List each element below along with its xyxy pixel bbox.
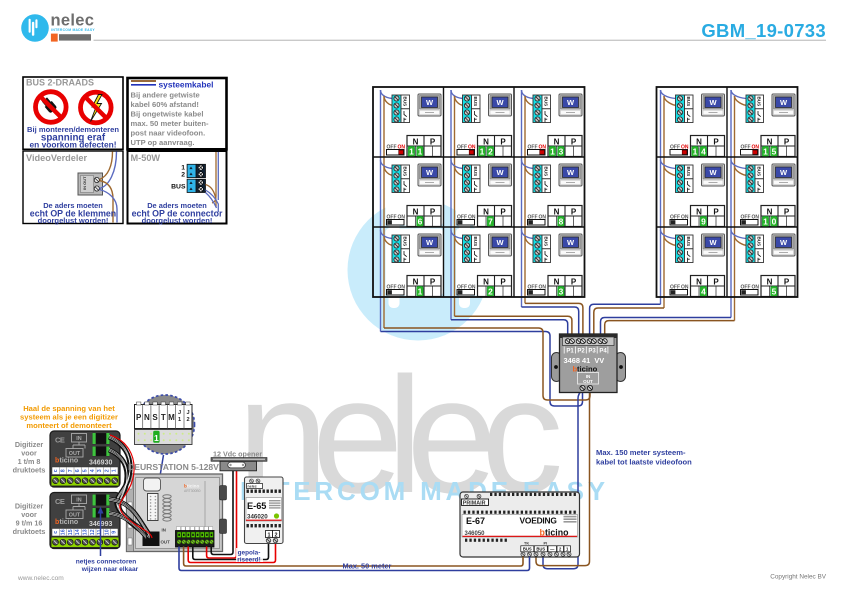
- svg-text:P: P: [430, 208, 436, 217]
- svg-text:druktoets: druktoets: [13, 466, 46, 475]
- svg-text:VideoVerdeler: VideoVerdeler: [26, 153, 88, 163]
- svg-text:P: P: [713, 138, 719, 147]
- svg-text:IN: IN: [76, 436, 81, 442]
- svg-text:N: N: [144, 413, 150, 422]
- svg-text:15: 15: [68, 529, 74, 535]
- svg-text:W: W: [426, 98, 434, 107]
- svg-text:N: N: [483, 278, 489, 287]
- svg-text:c: c: [53, 531, 59, 534]
- svg-text:4: 4: [701, 287, 706, 297]
- svg-text:9: 9: [701, 217, 706, 227]
- svg-text:BUS: BUS: [757, 167, 762, 177]
- svg-text:max. 50 meter buiten-: max. 50 meter buiten-: [131, 119, 210, 128]
- svg-text:1: 1: [550, 147, 555, 157]
- svg-text:P: P: [784, 138, 790, 147]
- svg-text:W: W: [709, 98, 717, 107]
- svg-text:W: W: [567, 98, 575, 107]
- svg-text:1: 1: [418, 287, 423, 297]
- svg-text:VOEDING: VOEDING: [520, 516, 557, 526]
- svg-text:2: 2: [488, 287, 493, 297]
- svg-text:W: W: [426, 168, 434, 177]
- svg-text:10: 10: [104, 529, 110, 535]
- svg-text:2: 2: [488, 147, 493, 157]
- svg-text:W: W: [496, 98, 504, 107]
- svg-text:P: P: [713, 278, 719, 287]
- svg-text:P: P: [500, 138, 506, 147]
- svg-text:BUS: BUS: [171, 184, 186, 191]
- svg-text:INTERCOM MADE EASY: INTERCOM MADE EASY: [51, 28, 95, 32]
- svg-text:netjes connectoren: netjes connectoren: [76, 559, 136, 566]
- svg-text:P: P: [571, 138, 577, 147]
- svg-text:346930: 346930: [89, 460, 112, 467]
- svg-text:BUS 2-DRAADS: BUS 2-DRAADS: [26, 78, 94, 88]
- svg-text:N: N: [413, 138, 419, 147]
- svg-text:ticino: ticino: [545, 528, 569, 538]
- svg-text:nelec: nelec: [248, 485, 257, 489]
- svg-text:N: N: [413, 208, 419, 217]
- svg-text:7: 7: [488, 217, 493, 227]
- svg-text:OUT: OUT: [69, 451, 81, 457]
- svg-text:N: N: [413, 278, 419, 287]
- svg-text:1: 1: [763, 217, 768, 227]
- svg-text:ticino: ticino: [187, 484, 199, 489]
- svg-text:BUS: BUS: [544, 97, 549, 107]
- svg-text:BUS: BUS: [403, 167, 408, 177]
- svg-text:P: P: [500, 208, 506, 217]
- svg-text:DEURSTATION 5-128V: DEURSTATION 5-128V: [128, 462, 219, 472]
- svg-text:9: 9: [112, 531, 118, 534]
- svg-text:N: N: [767, 278, 773, 287]
- svg-text:6: 6: [75, 469, 81, 472]
- svg-text:N: N: [483, 208, 489, 217]
- svg-text:W: W: [709, 168, 717, 177]
- svg-text:kabel 60% afstand!: kabel 60% afstand!: [131, 100, 199, 109]
- svg-text:TK: TK: [524, 542, 529, 546]
- svg-text:OUT: OUT: [69, 513, 81, 519]
- svg-text:druktoets: druktoets: [13, 527, 46, 536]
- svg-text:BUS: BUS: [757, 97, 762, 107]
- svg-text:PRIMAIR: PRIMAIR: [463, 500, 486, 506]
- svg-text:N: N: [554, 208, 560, 217]
- svg-text:4: 4: [90, 469, 96, 472]
- svg-text:P4: P4: [599, 349, 607, 355]
- svg-text:W: W: [567, 168, 575, 177]
- svg-text:P: P: [500, 278, 506, 287]
- svg-text:doorgelust worden!: doorgelust worden!: [142, 216, 213, 225]
- svg-text:1: 1: [112, 469, 118, 472]
- svg-text:16: 16: [60, 529, 66, 535]
- svg-text:CE: CE: [55, 497, 65, 506]
- svg-text:P: P: [571, 208, 577, 217]
- svg-text:N: N: [696, 208, 702, 217]
- svg-text:P: P: [571, 278, 577, 287]
- svg-text:Max. 150 meter systeem-: Max. 150 meter systeem-: [596, 448, 686, 457]
- svg-text:N: N: [554, 278, 560, 287]
- svg-text:Bij ongetwiste kabel: Bij ongetwiste kabel: [131, 110, 204, 119]
- svg-text:N: N: [767, 138, 773, 147]
- svg-text:GBM_19-0733: GBM_19-0733: [701, 20, 826, 41]
- svg-text:www.nelec.com: www.nelec.com: [17, 575, 64, 582]
- svg-text:PI: PI: [544, 542, 548, 546]
- svg-text:BUS: BUS: [473, 237, 478, 247]
- svg-text:BUS: BUS: [544, 237, 549, 247]
- svg-text:2: 2: [104, 469, 110, 472]
- svg-text:riseerd!: riseerd!: [237, 557, 260, 564]
- svg-text:W: W: [780, 238, 788, 247]
- svg-text:W: W: [496, 168, 504, 177]
- svg-text:S: S: [152, 413, 158, 422]
- svg-text:M-50W: M-50W: [131, 153, 161, 163]
- svg-text:N: N: [696, 278, 702, 287]
- svg-text:5: 5: [772, 287, 777, 297]
- svg-text:8: 8: [60, 469, 66, 472]
- svg-text:1: 1: [418, 147, 423, 157]
- svg-text:Max. 50 meter: Max. 50 meter: [343, 562, 392, 571]
- svg-text:N: N: [483, 138, 489, 147]
- svg-text:W: W: [780, 98, 788, 107]
- svg-text:5: 5: [772, 147, 777, 157]
- svg-text:P3: P3: [588, 349, 596, 355]
- svg-text:P2: P2: [577, 349, 585, 355]
- svg-text:1: 1: [268, 533, 271, 539]
- svg-text:Bij andere getwiste: Bij andere getwiste: [131, 91, 200, 100]
- svg-text:1: 1: [480, 147, 485, 157]
- svg-text:kabel tot laatste videofoon: kabel tot laatste videofoon: [596, 458, 692, 467]
- svg-text:IN: IN: [76, 498, 81, 504]
- svg-text:W: W: [709, 238, 717, 247]
- svg-text:1: 1: [409, 147, 414, 157]
- svg-text:wijzen naar elkaar: wijzen naar elkaar: [81, 566, 139, 573]
- svg-text:W: W: [496, 238, 504, 247]
- svg-text:M: M: [168, 413, 175, 422]
- svg-text:8: 8: [559, 217, 564, 227]
- svg-text:BUS: BUS: [686, 237, 691, 247]
- svg-text:OUT: OUT: [161, 540, 171, 545]
- svg-text:7: 7: [68, 469, 74, 472]
- svg-text:N: N: [554, 138, 560, 147]
- svg-text:2: 2: [275, 533, 278, 539]
- svg-text:W: W: [780, 168, 788, 177]
- svg-text:W: W: [567, 238, 575, 247]
- svg-text:post naar videofoon.: post naar videofoon.: [131, 129, 206, 138]
- svg-text:4: 4: [701, 147, 706, 157]
- svg-text:P: P: [784, 278, 790, 287]
- svg-text:BUS: BUS: [536, 547, 545, 552]
- svg-text:ART300B0: ART300B0: [184, 489, 201, 493]
- svg-text:346020: 346020: [247, 514, 268, 521]
- svg-text:CE: CE: [55, 436, 65, 445]
- svg-text:ticino: ticino: [60, 458, 79, 465]
- svg-text:N: N: [767, 208, 773, 217]
- svg-text:N: N: [696, 138, 702, 147]
- svg-text:3: 3: [559, 287, 564, 297]
- svg-text:BUS: BUS: [544, 167, 549, 177]
- svg-text:1: 1: [693, 147, 698, 157]
- svg-text:systeemkabel: systeemkabel: [159, 80, 214, 90]
- svg-text:13: 13: [82, 529, 88, 535]
- svg-text:BUS: BUS: [403, 237, 408, 247]
- svg-text:12 Vdc opener: 12 Vdc opener: [213, 450, 262, 459]
- svg-text:2: 2: [181, 171, 185, 178]
- svg-text:en voorkom defecten!: en voorkom defecten!: [29, 140, 116, 150]
- svg-text:3: 3: [97, 469, 103, 472]
- svg-text:IN: IN: [162, 528, 166, 533]
- svg-text:c: c: [53, 469, 59, 472]
- svg-text:gepola-: gepola-: [238, 550, 261, 557]
- svg-text:BUS: BUS: [473, 97, 478, 107]
- svg-text:P: P: [430, 138, 436, 147]
- svg-text:E-67: E-67: [466, 516, 485, 526]
- svg-text:OUT: OUT: [583, 379, 593, 384]
- svg-text:UTP op aanvraag.: UTP op aanvraag.: [131, 138, 195, 147]
- svg-text:12: 12: [90, 529, 96, 535]
- svg-text:1: 1: [178, 417, 181, 423]
- svg-text:BUS: BUS: [686, 97, 691, 107]
- svg-text:P: P: [430, 278, 436, 287]
- svg-text:J: J: [186, 410, 189, 416]
- svg-text:0: 0: [772, 217, 777, 227]
- svg-text:5: 5: [82, 469, 88, 472]
- svg-text:P: P: [784, 208, 790, 217]
- svg-text:2: 2: [186, 417, 189, 423]
- svg-text:BUS: BUS: [686, 167, 691, 177]
- svg-text:1: 1: [763, 147, 768, 157]
- svg-text:T: T: [161, 413, 166, 422]
- svg-text:1: 1: [154, 433, 159, 443]
- svg-text:P: P: [713, 208, 719, 217]
- svg-text:J: J: [178, 410, 181, 416]
- svg-text:BUS: BUS: [757, 237, 762, 247]
- svg-text:W: W: [426, 238, 434, 247]
- svg-text:3: 3: [559, 147, 564, 157]
- svg-text:BUS: BUS: [473, 167, 478, 177]
- svg-text:14: 14: [75, 529, 81, 535]
- svg-text:ticino: ticino: [60, 519, 79, 526]
- svg-text:doorgelust worden!: doorgelust worden!: [38, 216, 109, 225]
- svg-text:Copyright Nelec BV: Copyright Nelec BV: [770, 574, 827, 581]
- svg-text:BUS: BUS: [523, 547, 532, 552]
- svg-text:IN OUT: IN OUT: [82, 176, 87, 190]
- svg-text:P1: P1: [566, 349, 574, 355]
- svg-text:monteert of demonteert: monteert of demonteert: [26, 421, 112, 430]
- svg-text:6: 6: [418, 217, 423, 227]
- svg-text:P: P: [136, 413, 142, 422]
- svg-text:BUS: BUS: [403, 97, 408, 107]
- svg-text:E-65: E-65: [247, 501, 266, 511]
